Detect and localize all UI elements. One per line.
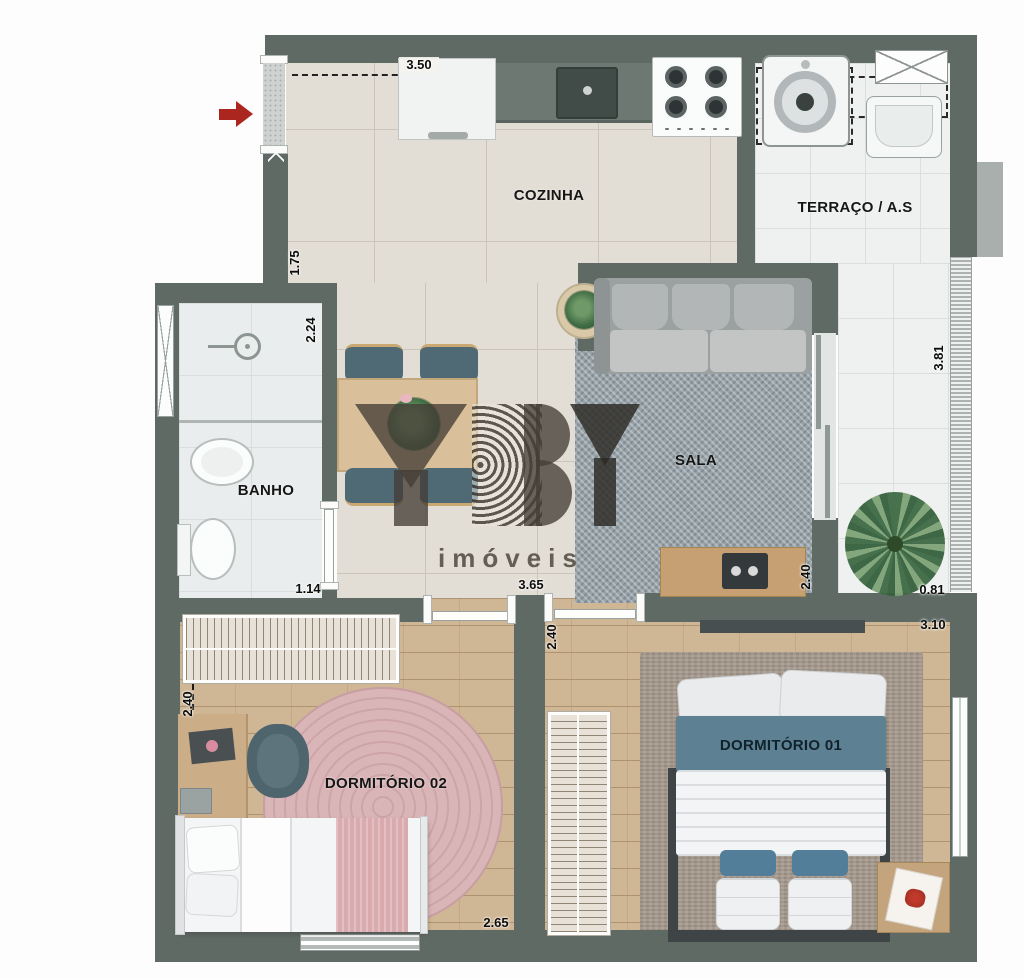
wall-bath-top: [155, 283, 337, 303]
desk-picture-frame: [188, 728, 235, 764]
desk-laptop: [180, 788, 212, 814]
burner-icon: [665, 66, 687, 88]
overhead-cabinet: [875, 50, 948, 84]
floor-plan: imóveis COZINHA TERRAÇO / A.S BANHO SALA…: [0, 0, 1024, 979]
room-label-dormitorio1: DORMITÓRIO 01: [711, 738, 851, 754]
sliding-panel-2: [825, 425, 830, 518]
dining-chair: [420, 344, 478, 382]
dim-sala-width: 3.65: [511, 578, 551, 592]
entry-jamb-top: [261, 56, 287, 63]
fridge-handle: [428, 132, 468, 139]
logo-letter-y1-stem: [394, 470, 428, 526]
sofa-back-cushion: [612, 284, 668, 330]
bed-duvet-fold: [240, 818, 292, 932]
dim-hall-depth: 2.40: [545, 615, 559, 659]
wall-sala-right-lower: [812, 518, 838, 593]
dim-varanda-length: 3.81: [932, 336, 946, 380]
wall-sala-right-upper: [812, 283, 838, 335]
wall-entry-left: [263, 148, 288, 285]
dorm1-bed: [668, 668, 890, 942]
dim-banho-length: 2.24: [304, 308, 318, 352]
burner-icon: [705, 66, 727, 88]
dorm2-door-leaf: [432, 611, 510, 621]
wall-bedroom-divider: [514, 595, 545, 932]
burner-icon: [665, 96, 687, 118]
sofa-back-cushion: [672, 284, 730, 330]
foot-pillow-white: [788, 878, 852, 930]
dorm1-window: [952, 697, 968, 857]
dim-entry-wall: 1.75: [288, 241, 302, 285]
dorm2-wardrobe: [183, 615, 399, 683]
brand-logo: imóveis: [350, 400, 650, 580]
dorm2-door-jamb-right: [508, 596, 515, 623]
dorm2-window: [300, 934, 420, 951]
bed-duvet: [676, 770, 886, 856]
entry-door: [263, 63, 285, 147]
room-label-dormitorio2: DORMITÓRIO 02: [316, 776, 456, 792]
washer-knob-icon: [801, 60, 810, 69]
sofa-seat-cushion: [610, 330, 708, 372]
bed-blanket-pink: [336, 818, 408, 932]
dim-dormitorio2-depth: 2.40: [181, 682, 195, 726]
shower-head-icon: [234, 333, 261, 360]
dorm2-bed: [178, 818, 428, 932]
dining-chair: [345, 344, 403, 382]
bed-pillow: [185, 873, 239, 918]
bed-pillow: [185, 824, 240, 874]
logo-letter-y2-triangle: [570, 404, 640, 466]
toilet-bowl: [190, 518, 236, 580]
dorm1-door-leaf: [554, 609, 636, 619]
logo-letter-b-bump-bottom: [536, 460, 572, 526]
bed-frame-foot: [668, 930, 890, 942]
dim-banho-width: 1.14: [288, 582, 328, 596]
sofa-arm: [594, 278, 610, 374]
dim-dormitorio2-width: 2.65: [476, 916, 516, 930]
shower-partition: [179, 420, 322, 423]
room-label-banho: BANHO: [231, 483, 301, 499]
wall-bath-right-upper: [322, 303, 337, 507]
bath-door-jamb-top: [321, 502, 338, 508]
dim-sala-depth: 2.40: [799, 555, 813, 599]
bathroom-sink: [190, 438, 254, 486]
sofa: [594, 278, 812, 374]
foot-pillow-blue: [720, 850, 776, 876]
bed-foot-rail: [420, 816, 428, 934]
dorm1-wardrobe: [548, 712, 610, 935]
room-label-cozinha: COZINHA: [504, 188, 594, 204]
dim-dormitorio1-width: 3.10: [913, 618, 953, 632]
dorm2-door-jamb-left: [424, 596, 431, 623]
dorm2-chair: [247, 724, 309, 798]
dim-varanda-width: 0.81: [912, 583, 952, 597]
foot-pillow-white: [716, 878, 780, 930]
sofa-seat-cushion: [710, 330, 806, 372]
stove-knobs: [661, 126, 735, 132]
entry-swing-mark: [268, 150, 284, 164]
balcony-sliding-door: [814, 333, 836, 520]
logo-subtitle: imóveis: [438, 544, 618, 572]
balcony-plant: [845, 492, 945, 596]
dim-cozinha-width: 3.50: [399, 57, 439, 73]
dorm1-door-jamb-right: [637, 594, 644, 621]
foot-pillow-blue: [792, 850, 848, 876]
entry-arrow-icon: [219, 101, 253, 127]
logo-letter-y2-stem: [594, 458, 616, 526]
washing-machine: [762, 55, 850, 147]
burner-icon: [705, 96, 727, 118]
bathroom-window: [157, 305, 174, 417]
exterior-ledge: [977, 162, 1003, 257]
room-label-terraco: TERRAÇO / A.S: [785, 200, 925, 216]
room-label-sala: SALA: [666, 453, 726, 469]
bed-headboard: [175, 815, 185, 935]
tank-basin-icon: [875, 105, 933, 147]
sofa-back-cushion: [734, 284, 794, 330]
toilet-tank: [177, 524, 191, 576]
bath-door-leaf: [324, 509, 334, 583]
dorm1-headboard: [700, 620, 865, 633]
wall-top: [265, 35, 977, 63]
wall-terrace-right: [950, 35, 977, 257]
balcony-railing: [950, 257, 972, 592]
sliding-panel-1: [816, 335, 821, 429]
stove: [652, 57, 742, 137]
laundry-tank: [866, 96, 942, 158]
tv: [722, 553, 768, 589]
washer-drum-icon: [796, 93, 814, 111]
faucet-icon: [583, 86, 592, 95]
logo-letter-b-bump-top: [536, 404, 570, 466]
